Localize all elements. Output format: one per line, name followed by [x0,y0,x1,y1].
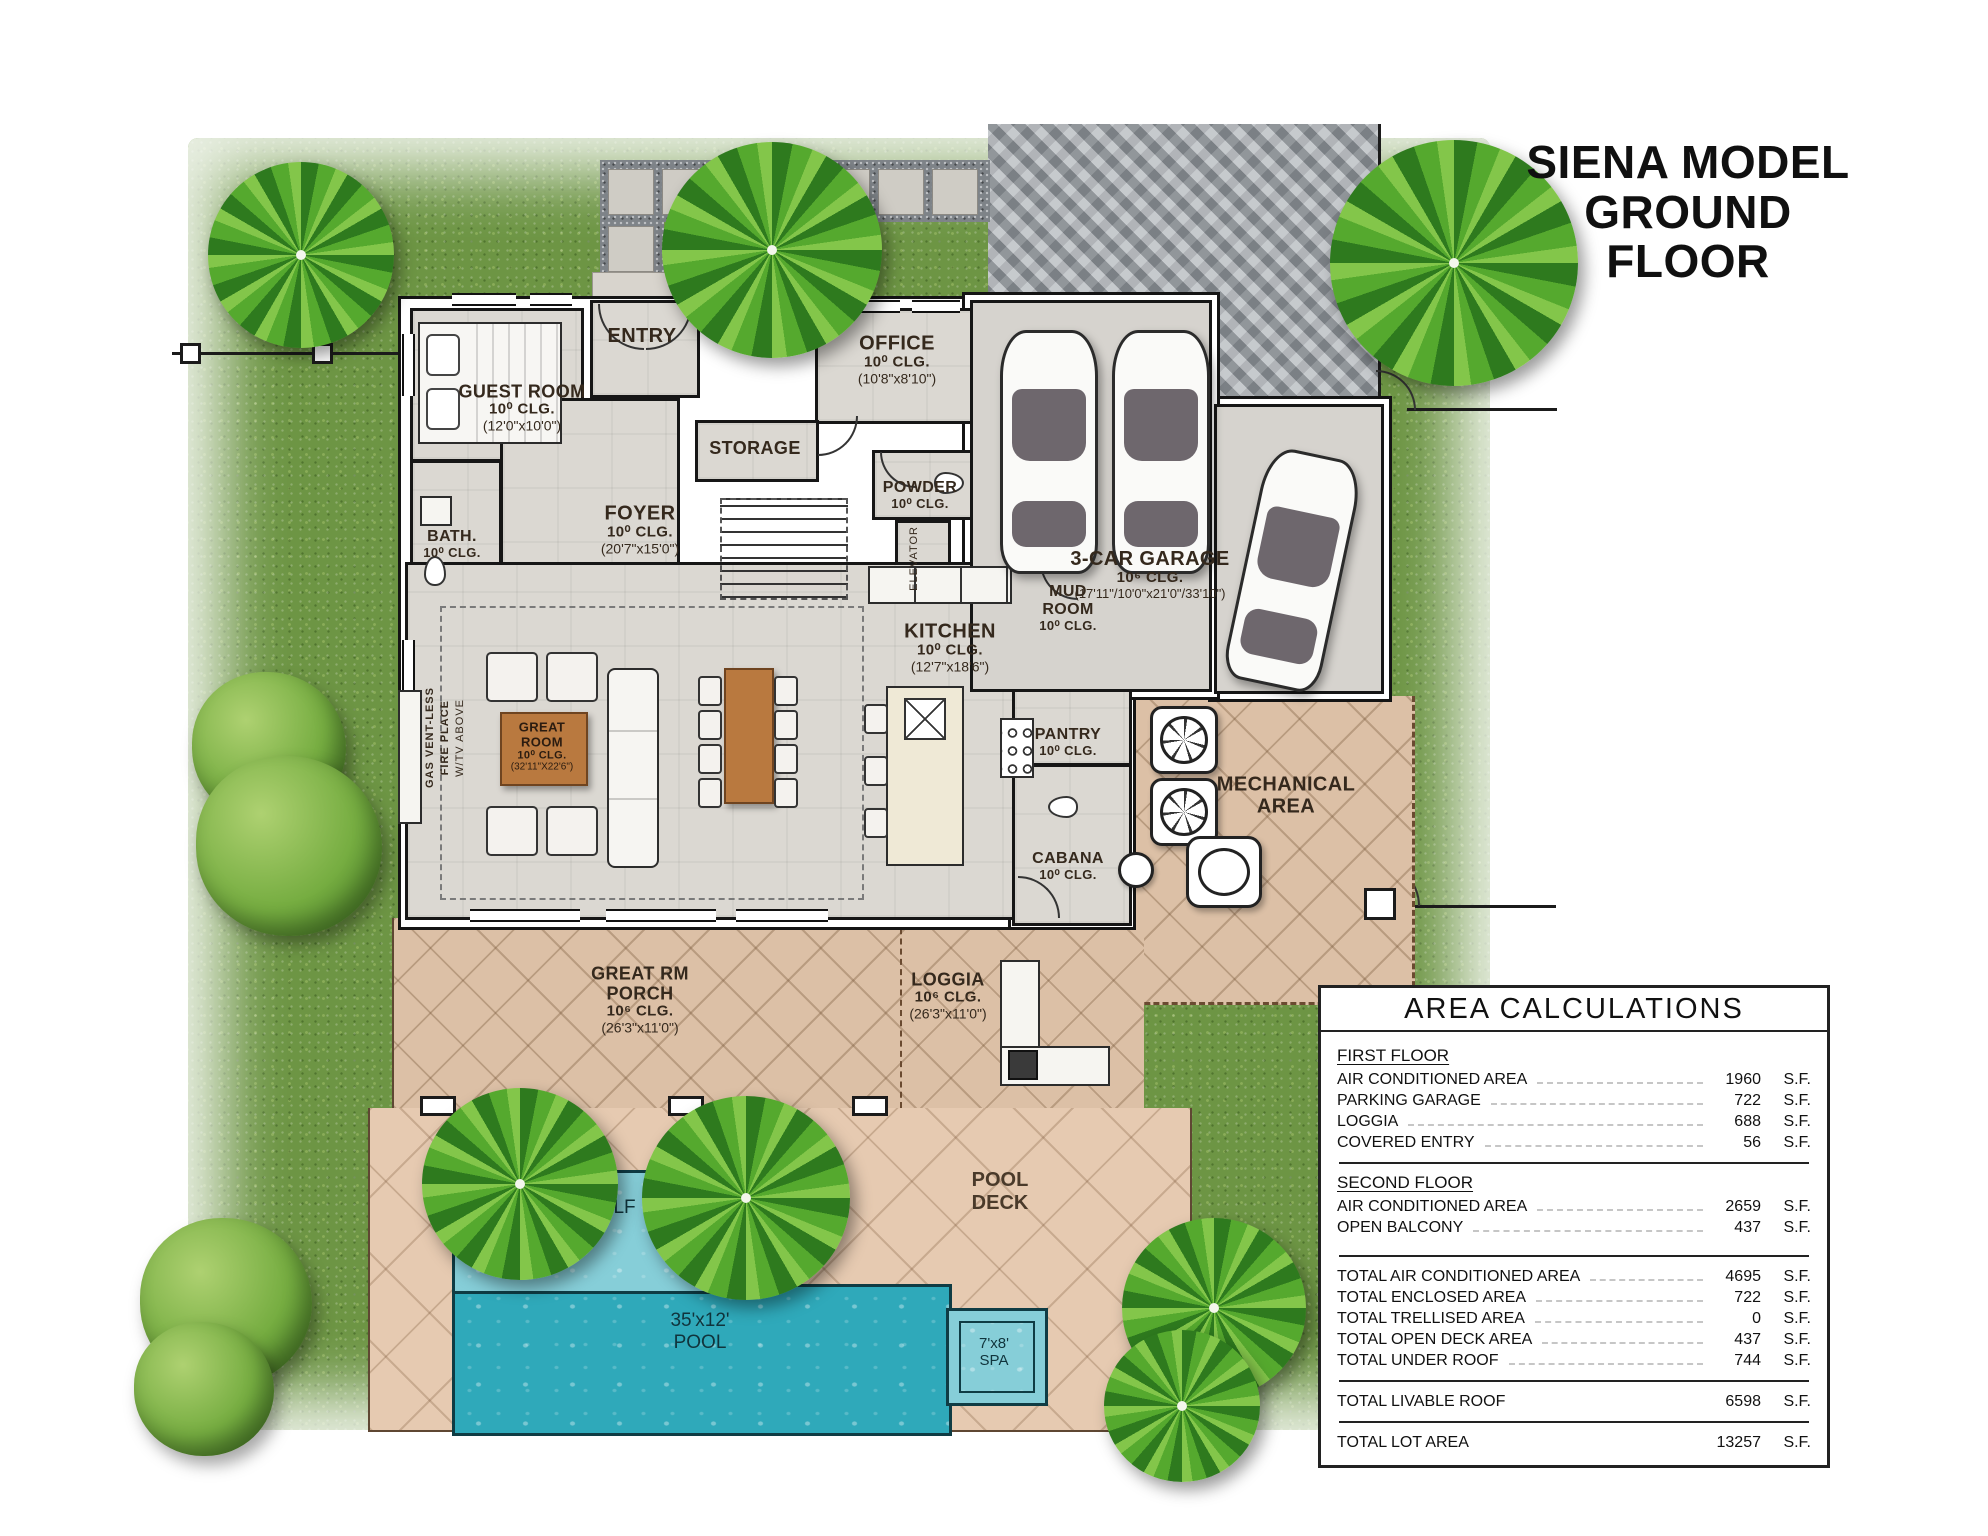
window [452,293,516,306]
divider [1339,1421,1809,1423]
label-spa: 7'x8' SPA [964,1335,1024,1370]
window [402,334,415,396]
area-row: TOTAL LIVABLE ROOF6598S.F. [1337,1391,1811,1412]
palm-tree [662,142,882,358]
area-row: TOTAL LOT AREA13257S.F. [1337,1432,1811,1453]
island-sink [904,698,946,740]
label-entry: ENTRY [587,325,697,347]
paver-stone [608,169,654,215]
island-stool [864,704,888,734]
area-row: OPEN BALCONY437S.F. [1337,1217,1811,1238]
area-row: PARKING GARAGE722S.F. [1337,1090,1811,1111]
sofa [607,668,659,868]
dining-chair [774,710,798,740]
section-heading: SECOND FLOOR [1337,1173,1811,1193]
grill-icon [1008,1050,1038,1080]
floor-plan-canvas: ENTRY GUEST ROOM 10⁰ CLG. (12'0"x10'0") … [0,0,1988,1536]
porch-column [852,1096,888,1116]
cabana-toilet [1048,796,1078,818]
toilet [424,556,446,586]
area-panel-body: FIRST FLOOR AIR CONDITIONED AREA1960S.F.… [1321,1032,1827,1465]
area-panel-title: AREA CALCULATIONS [1321,988,1827,1032]
car [1000,330,1098,574]
label-mechanical-area: MECHANICAL AREA [1201,774,1371,819]
armchair [546,652,598,702]
area-row: TOTAL OPEN DECK AREA437S.F. [1337,1329,1811,1350]
area-row: TOTAL AIR CONDITIONED AREA4695S.F. [1337,1266,1811,1287]
sliding-door [470,909,580,922]
armchair [546,806,598,856]
palm-tree [422,1088,618,1280]
divider [1339,1255,1809,1257]
label-office: OFFICE 10⁰ CLG. (10'8"x8'10") [822,333,972,388]
label-loggia: LOGGIA 10⁶ CLG. (26'3"x11'0") [883,970,1013,1023]
sliding-door [736,909,828,922]
round-tree [134,1322,274,1456]
label-fireplace: GAS VENT-LESS FIRE PLACE W/TV ABOVE [424,648,468,828]
label-great-room: GREAT ROOM 10⁰ CLG. (32'11"X22'6") [501,721,583,774]
divider [1339,1380,1809,1382]
label-powder: POWDER 10⁰ CLG. [865,479,975,511]
paver-stone [608,226,654,272]
car [1112,330,1210,574]
divider [1339,1162,1809,1164]
dining-table [724,668,774,804]
sliding-door [606,909,716,922]
area-row: TOTAL UNDER ROOF744S.F. [1337,1350,1811,1371]
area-row: AIR CONDITIONED AREA1960S.F. [1337,1069,1811,1090]
pool-pump-icon [1118,852,1154,888]
label-great-rm-porch: GREAT RM PORCH 10⁶ CLG. (26'3"x11'0") [575,964,705,1037]
dining-chair [774,778,798,808]
porch-column [420,1096,456,1116]
dining-chair [698,744,722,774]
island-stool [864,756,888,786]
bed-pillow [426,334,460,376]
area-row: COVERED ENTRY56S.F. [1337,1132,1811,1153]
area-row: TOTAL ENCLOSED AREA722S.F. [1337,1287,1811,1308]
dining-chair [774,744,798,774]
window [912,300,960,313]
fireplace [398,690,422,824]
title-line-1: SIENA MODEL [1498,138,1878,188]
palm-tree [208,162,394,348]
page-title: SIENA MODEL GROUND FLOOR [1498,138,1878,287]
area-row: LOGGIA688S.F. [1337,1111,1811,1132]
section-heading: FIRST FLOOR [1337,1046,1811,1066]
ac-condenser-icon [1150,706,1218,774]
label-pantry: PANTRY 10⁰ CLG. [1018,726,1118,758]
area-calculations-panel: AREA CALCULATIONS FIRST FLOOR AIR CONDIT… [1318,985,1830,1468]
dining-chair [698,778,722,808]
bath-sink [420,496,452,526]
fence-line-right-top [1407,408,1557,411]
round-tree [196,756,382,936]
label-foyer: FOYER 10⁰ CLG. (20'7"x15'0") [565,503,715,558]
kitchen-counter [868,566,1012,604]
label-pool: 35'x12' POOL [655,1310,745,1354]
label-bath: BATH. 10⁰ CLG. [407,528,497,560]
dining-chair [774,676,798,706]
armchair [486,806,538,856]
title-line-2: GROUND FLOOR [1498,188,1878,287]
paver-stone [878,169,924,215]
label-cabana: CABANA 10⁰ CLG. [1018,850,1118,882]
label-garage: 3-CAR GARAGE 10⁶ CLG. (17'11"/10'0"x21'0… [1020,548,1280,602]
palm-tree [1104,1330,1260,1482]
pool-equipment-icon [1186,836,1262,908]
paver-stone [932,169,978,215]
dining-chair [698,676,722,706]
armchair [486,652,538,702]
fence-post [180,343,201,364]
dining-chair [698,710,722,740]
window [530,293,572,306]
staircase [720,498,848,600]
swimming-pool [452,1284,952,1436]
palm-tree [642,1096,850,1300]
area-row: TOTAL TRELLISED AREA0S.F. [1337,1308,1811,1329]
label-pool-deck: POOL DECK [960,1169,1040,1215]
label-storage: STORAGE [690,438,820,458]
label-elevator: ELEVATOR [908,522,921,594]
label-kitchen: KITCHEN 10⁰ CLG. (12'7"x18'6") [875,621,1025,676]
corner-column [1364,888,1396,920]
label-guest-room: GUEST ROOM 10⁰ CLG. (12'0"x10'0") [447,382,597,435]
area-row: AIR CONDITIONED AREA2659S.F. [1337,1196,1811,1217]
island-stool [864,808,888,838]
